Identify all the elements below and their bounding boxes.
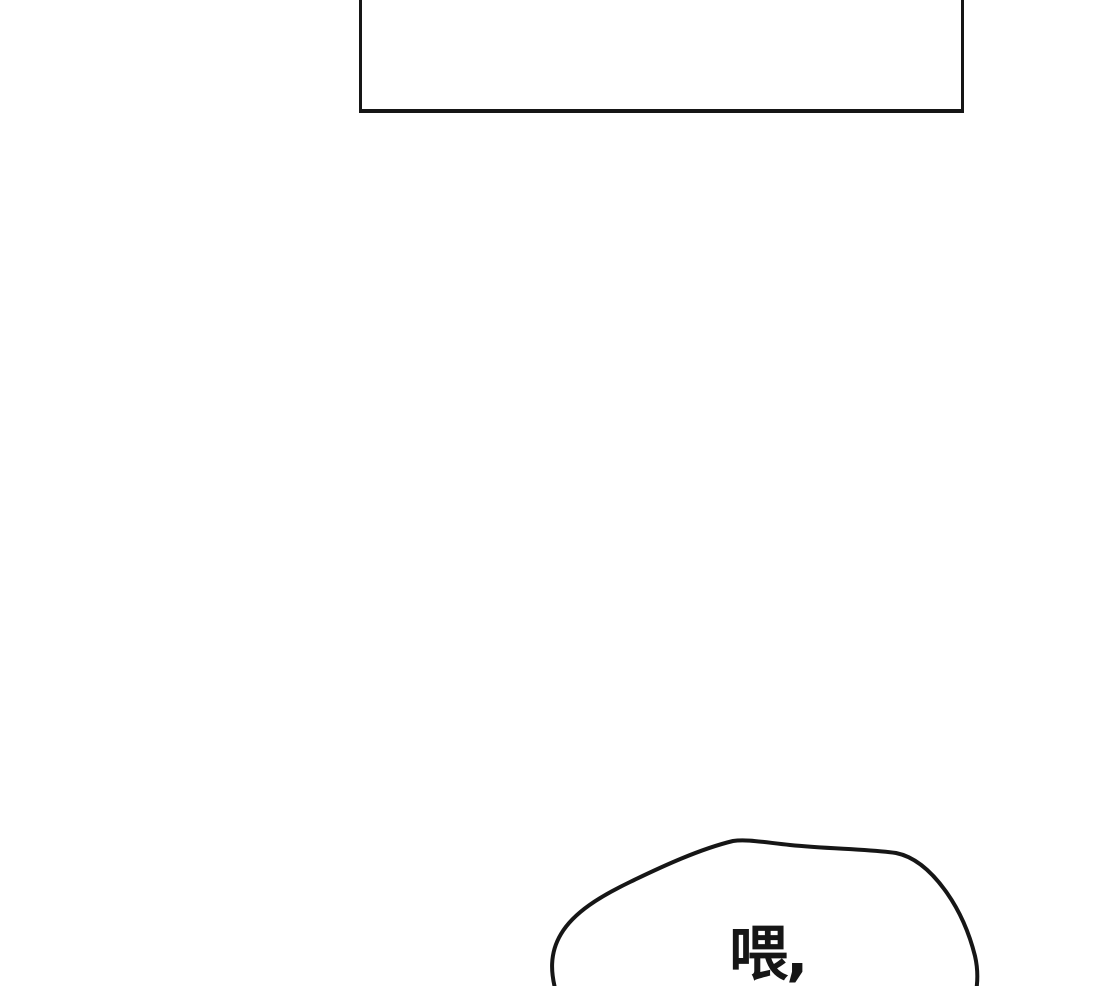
comic-page: 喂, bbox=[0, 0, 1100, 986]
speech-bubble bbox=[0, 0, 1100, 986]
speech-bubble-text: 喂, bbox=[729, 924, 806, 983]
